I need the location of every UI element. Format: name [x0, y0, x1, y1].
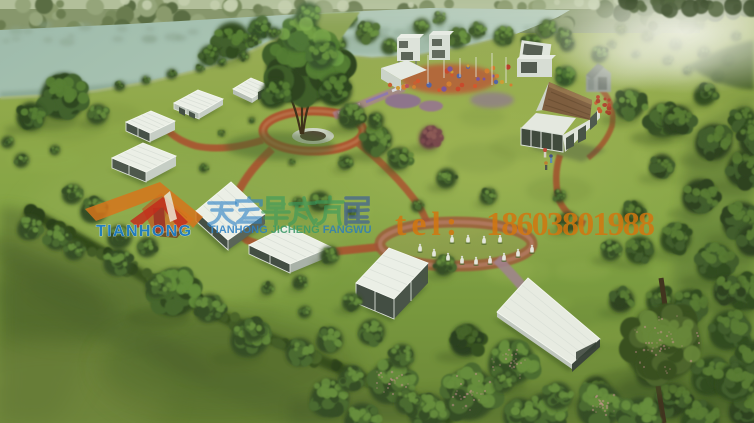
svg-text:tel:: tel:	[395, 206, 462, 243]
svg-text:TIANHONG: TIANHONG	[96, 223, 193, 240]
svg-text:18603801988: 18603801988	[486, 206, 654, 243]
svg-text:TIANHONG JICHENG FANGWU: TIANHONG JICHENG FANGWU	[209, 224, 372, 236]
